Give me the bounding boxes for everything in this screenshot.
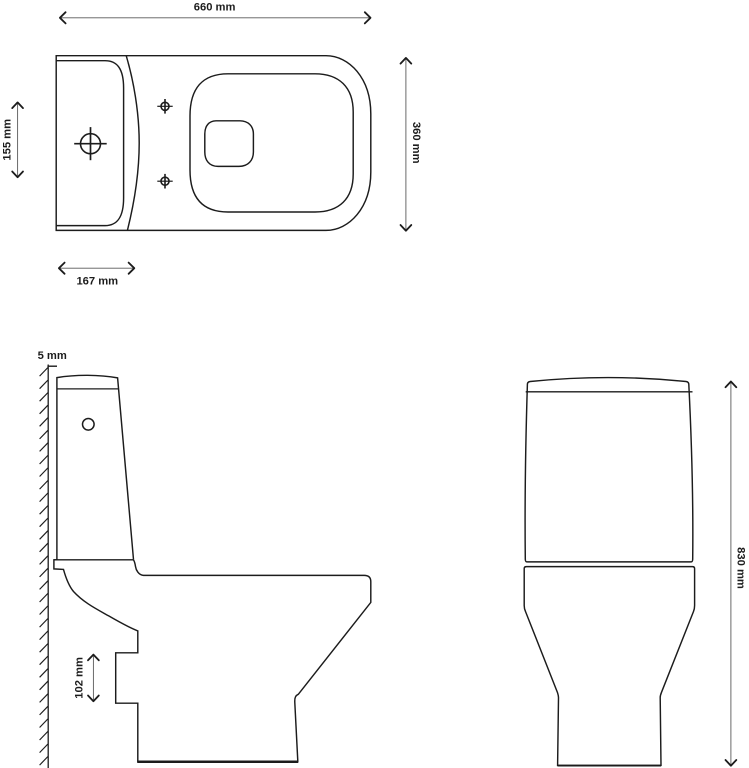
svg-text:360 mm: 360 mm	[410, 122, 422, 164]
svg-text:5 mm: 5 mm	[38, 350, 67, 362]
svg-text:167 mm: 167 mm	[76, 276, 118, 288]
svg-text:660 mm: 660 mm	[194, 1, 236, 13]
svg-text:102 mm: 102 mm	[73, 657, 85, 699]
svg-text:155 mm: 155 mm	[2, 119, 14, 161]
svg-text:830 mm: 830 mm	[735, 547, 747, 589]
